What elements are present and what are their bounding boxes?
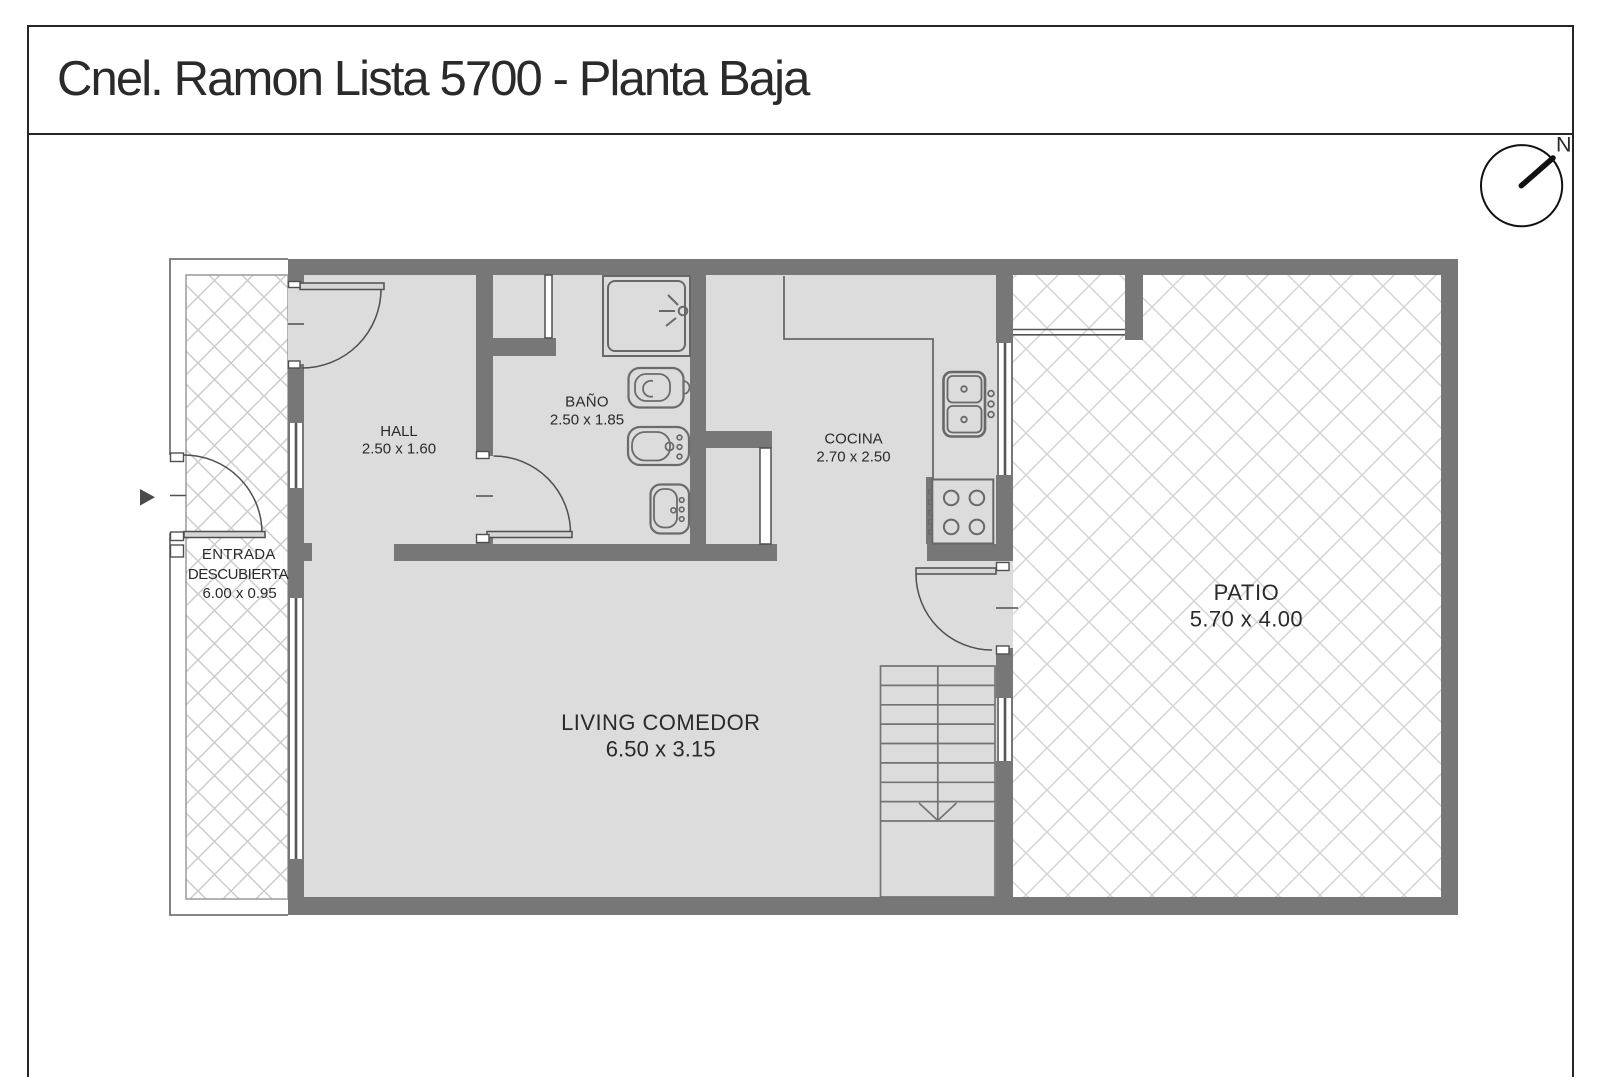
svg-text:COCINA: COCINA (824, 431, 882, 448)
svg-text:PATIO: PATIO (1214, 580, 1280, 605)
svg-text:LIVING COMEDOR: LIVING COMEDOR (561, 710, 760, 735)
svg-text:HALL: HALL (380, 423, 418, 440)
svg-text:2.50 x 1.85: 2.50 x 1.85 (550, 412, 624, 429)
svg-text:6.00 x 0.95: 6.00 x 0.95 (202, 585, 276, 602)
svg-text:DESCUBIERTA: DESCUBIERTA (188, 566, 289, 583)
svg-text:ENTRADA: ENTRADA (202, 546, 276, 563)
svg-text:2.50 x 1.60: 2.50 x 1.60 (362, 441, 436, 458)
svg-text:BAÑO: BAÑO (565, 394, 609, 411)
svg-text:2.70 x 2.50: 2.70 x 2.50 (816, 449, 890, 466)
svg-text:N: N (1556, 133, 1572, 157)
svg-text:5.70 x 4.00: 5.70 x 4.00 (1190, 607, 1303, 632)
svg-text:6.50 x 3.15: 6.50 x 3.15 (606, 737, 716, 762)
svg-text:Cnel. Ramon Lista 5700 - Plant: Cnel. Ramon Lista 5700 - Planta Baja (57, 52, 811, 106)
